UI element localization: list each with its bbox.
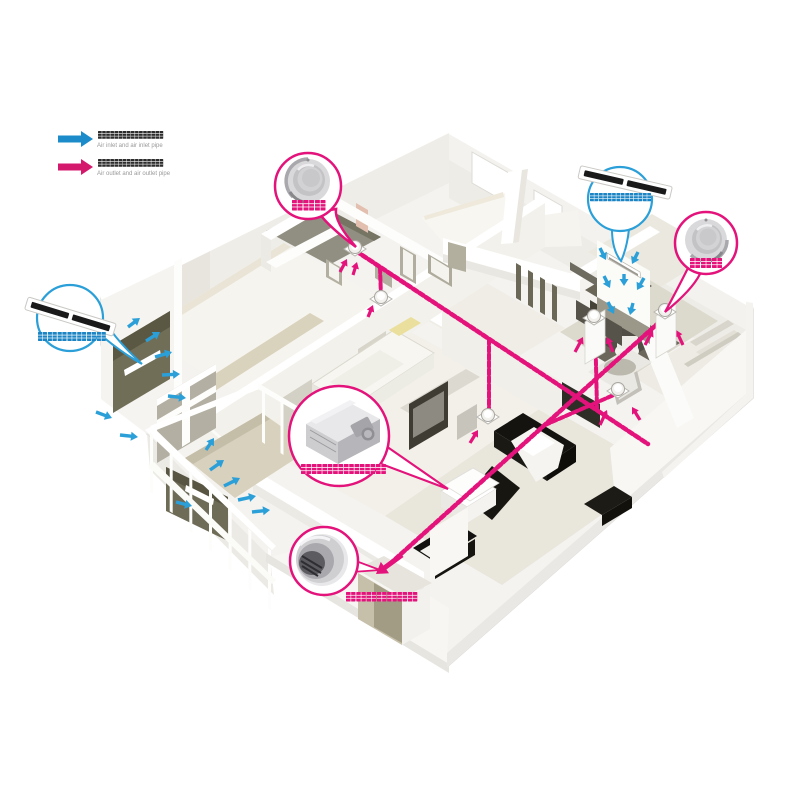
svg-text:Air inlet and air inlet pipe: Air inlet and air inlet pipe [97,143,163,149]
svg-text:Air outlet and air outlet pipe: Air outlet and air outlet pipe [97,171,171,177]
